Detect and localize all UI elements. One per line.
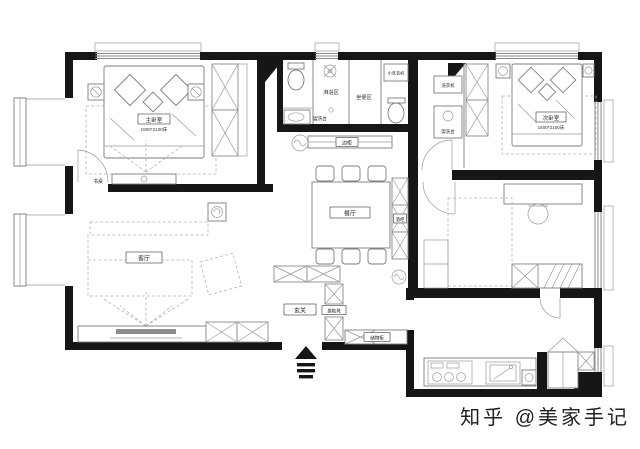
shoe-cabinet-column: 换鞋凳 [322,284,346,340]
living-room: 客厅 [78,203,268,342]
wine-cabinet: 酒柜 [392,178,408,259]
dining-room-label: 餐厅 [344,210,356,218]
sofa-outline [88,260,192,296]
small-washer-label: 小洗衣机 [388,70,406,77]
secondary-bedroom-label: 次卧室 [543,114,560,122]
vanity-bath-label: 盥洗台 [313,115,327,122]
floor-outlet-icon [208,203,226,221]
secondary-bedroom-door [422,140,452,170]
armchair-outline [200,253,242,295]
entrance-arrow-icon [295,346,317,378]
storage-cabinet-label: 储物柜 [370,335,384,342]
storage-cells [578,352,594,370]
side-cabinet-label: 边柜 [342,140,352,147]
toilet-zone-label: 坐便区 [356,93,372,101]
washer-label: 洗衣机 [441,82,455,89]
study-desk [504,184,582,204]
shower-icon [324,65,336,112]
double-bed [104,66,204,158]
secondary-bedroom: 洗衣机 盥洗台 次卧室 1500*2100床 [422,63,596,170]
hall-cabinet [274,266,340,282]
vanity-cloak-label: 盥洗台 [441,128,455,135]
living-room-label: 客厅 [138,255,150,263]
desk-chair [528,204,548,224]
shower-zone-label: 淋浴区 [323,88,339,96]
kitchen-door [540,298,560,318]
secondary-bed-size: 1500*2100床 [538,124,565,131]
storage-cells [206,322,268,342]
master-bedroom: 书桌 主卧室 1900*2100床 [78,64,247,185]
vanity-sink [284,110,310,124]
plant-icon [292,135,308,151]
wine-cabinet-label: 酒柜 [396,216,405,223]
bathroom: 淋浴区 坐便区 小洗衣机 盥洗台 边柜 [283,60,408,151]
desk-label: 书桌 [93,178,103,185]
master-bedroom-door [78,150,108,182]
sofa-outline [90,222,208,235]
planned-wardrobe-outline [448,198,512,286]
shoe-bench-label: 换鞋凳 [327,308,341,315]
bedside-lamp-icon [88,84,104,100]
floor-plan-image: 书桌 主卧室 1900*2100床 淋浴区 坐便区 [0,0,640,449]
fridge-icon [548,338,578,388]
watermark-text: 知乎 @美家手记 [460,406,630,429]
dashed-guides [102,292,190,326]
bedside-lamp-icon [583,64,594,77]
tv-icon [116,329,176,334]
wardrobe [466,64,488,136]
floor-plan-svg: 书桌 主卧室 1900*2100床 淋浴区 坐便区 [0,0,640,449]
toilet-icon [388,98,405,123]
bedside-lamp-icon [188,84,204,100]
entry-hall: 换鞋凳 玄关 储物柜 [274,266,407,378]
daybed [512,264,582,288]
storage-cabinet: 储物柜 [345,330,407,344]
kitchen [424,298,594,389]
entry-label: 玄关 [294,307,306,315]
desk [112,174,176,184]
bedside-lamp-icon [496,64,510,78]
study-room [423,182,582,288]
toilet-icon [288,63,304,90]
window-sill [95,43,201,51]
master-bed-size: 1900*2100床 [141,126,168,133]
master-bedroom-label: 主卧室 [146,116,163,124]
gas-meter-icon [522,370,536,385]
plant-icon [392,270,406,284]
wardrobe [212,64,247,156]
